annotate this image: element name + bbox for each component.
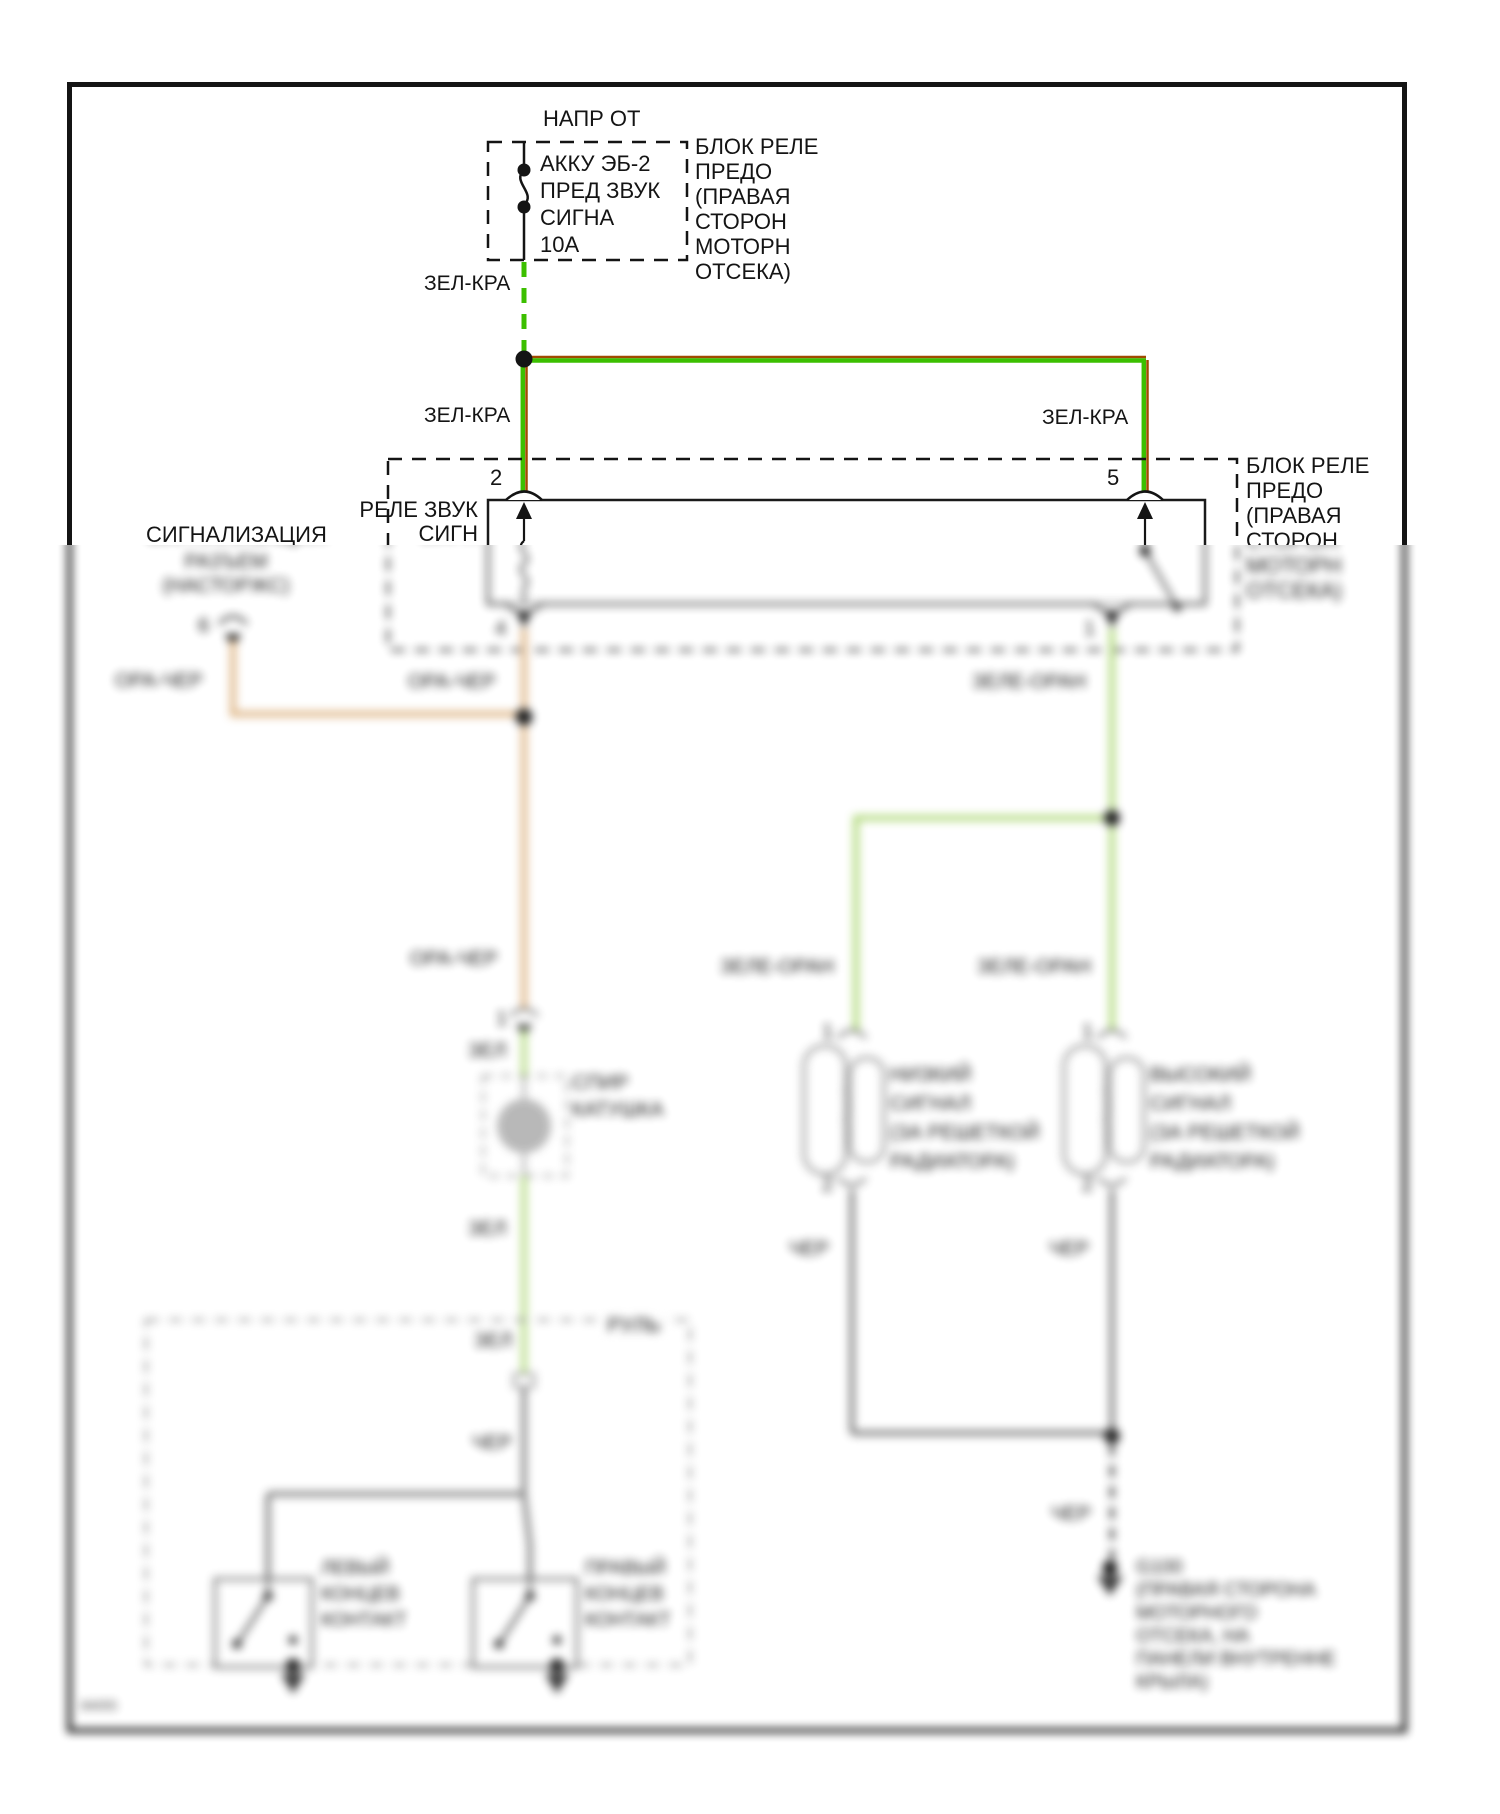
wire-label-green-red-2: ЗЕЛ-КРА [424, 404, 510, 428]
low-horn-pin-bottom: 2 [822, 1174, 833, 1197]
wire-label-green-orange-2: ЗЕЛЕ-ОРАН [720, 956, 834, 979]
splice-dot [516, 351, 533, 368]
steering-wheel-label: РУЛЬ [604, 1314, 664, 1338]
high-horn-pin-bottom: 2 [1082, 1174, 1093, 1197]
wire-label-green-2: ЗЕЛ [468, 1218, 507, 1241]
doc-number: 84055 [81, 1699, 117, 1713]
wire-label-green-red-1: ЗЕЛ-КРА [424, 272, 510, 296]
fuse-label-line: СИГНА [540, 205, 614, 230]
wire-label-green-orange-3: ЗЕЛЕ-ОРАН [977, 956, 1091, 979]
relay-pin-5: 5 [1107, 465, 1119, 490]
low-horn-symbol [804, 1031, 884, 1434]
fuse-label-line: 10А [540, 232, 579, 257]
alarm-title: СИГНАЛИЗАЦИЯ [146, 522, 327, 547]
fuse-label-line: АККУ ЭБ-2 [540, 151, 650, 176]
fuse-label-line: ПРЕД ЗВУК [540, 178, 660, 203]
high-horn-symbol [1064, 1031, 1144, 1434]
alarm-pin: 6 [198, 615, 209, 638]
wire-label-black-4: ЧЕР [1051, 1503, 1091, 1526]
wire-label-green-3: ЗЕЛ [474, 1330, 513, 1353]
right-horn-pad-switch [473, 1579, 577, 1694]
wire-label-orange-black-2: ОРА-ЧЕР [408, 671, 496, 694]
clockspring-pin: 1 [496, 1008, 507, 1031]
wiring-diagram-screenshot: НАПР ОТ АККУ ЭБ-2 ПРЕД ЗВУК СИГНА 10А БЛ… [0, 0, 1500, 1814]
high-horn-pin-top: 1 [1082, 1021, 1093, 1044]
wire-label-black-2: ЧЕР [1049, 1238, 1089, 1261]
wire-label-green-1: ЗЕЛ [468, 1040, 507, 1063]
wire-label-black-1: ЧЕР [789, 1238, 829, 1261]
low-horn-pin-top: 1 [822, 1021, 833, 1044]
wire-label-orange-black-1: ОРА-ЧЕР [115, 670, 203, 693]
wire-label-green-orange-1: ЗЕЛЕ-ОРАН [972, 671, 1086, 694]
wire-label-black-3: ЧЕР [472, 1432, 512, 1455]
relay-pin-2: 2 [490, 465, 502, 490]
wire-label-orange-black-3: ОРА-ЧЕР [410, 948, 498, 971]
power-wires [516, 262, 1148, 497]
wire-label-green-red-3: ЗЕЛ-КРА [1042, 406, 1128, 430]
left-horn-pad-switch [215, 1579, 312, 1694]
power-source-title: НАПР ОТ [543, 106, 640, 131]
relay-pin-1: 1 [1084, 618, 1095, 641]
relay-pin-4: 4 [495, 618, 506, 641]
